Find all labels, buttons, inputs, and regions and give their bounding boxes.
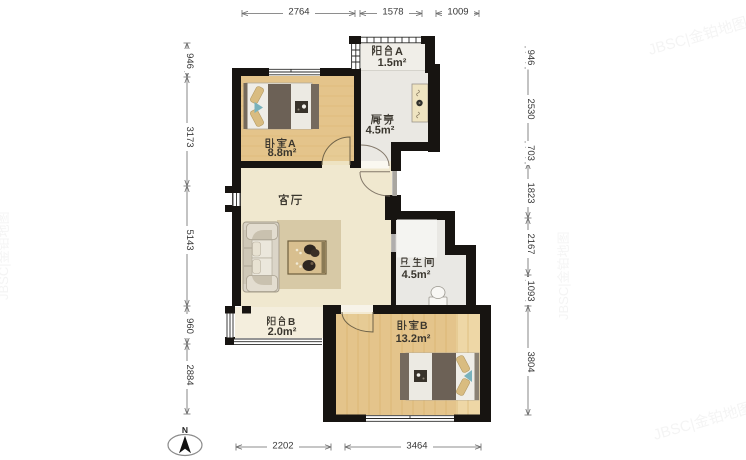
svg-text:1093: 1093 <box>525 280 536 301</box>
svg-text:1.5m²: 1.5m² <box>378 57 407 69</box>
svg-text:4.5m²: 4.5m² <box>402 269 431 281</box>
svg-text:946: 946 <box>184 53 195 69</box>
svg-text:JBSC|金铂地图: JBSC|金铂地图 <box>556 231 571 320</box>
svg-text:1009: 1009 <box>447 7 468 18</box>
svg-text:3173: 3173 <box>184 126 195 147</box>
svg-text:4.5m²: 4.5m² <box>366 125 395 137</box>
svg-text:2764: 2764 <box>288 7 309 18</box>
svg-text:JBSC|金铂地图: JBSC|金铂地图 <box>651 399 746 444</box>
svg-text:N: N <box>182 425 188 435</box>
svg-text:1578: 1578 <box>382 7 403 18</box>
svg-text:2530: 2530 <box>525 98 536 119</box>
svg-text:1823: 1823 <box>525 182 536 203</box>
svg-text:JBSC|金铂地图: JBSC|金铂地图 <box>646 14 746 59</box>
svg-text:960: 960 <box>184 318 195 334</box>
svg-text:703: 703 <box>525 145 536 161</box>
svg-text:5143: 5143 <box>184 229 195 250</box>
svg-text:B: B <box>420 320 428 332</box>
svg-text:8.8m²: 8.8m² <box>268 147 297 159</box>
svg-text:JBSC|金铂地图: JBSC|金铂地图 <box>0 211 11 300</box>
svg-text:2884: 2884 <box>184 364 195 385</box>
svg-text:2202: 2202 <box>272 441 293 452</box>
svg-text:3464: 3464 <box>406 441 427 452</box>
svg-text:13.2m²: 13.2m² <box>396 333 431 345</box>
svg-text:2167: 2167 <box>525 233 536 254</box>
svg-text:3804: 3804 <box>525 351 536 372</box>
svg-text:2.0m²: 2.0m² <box>268 326 297 338</box>
svg-text:946: 946 <box>525 50 536 66</box>
